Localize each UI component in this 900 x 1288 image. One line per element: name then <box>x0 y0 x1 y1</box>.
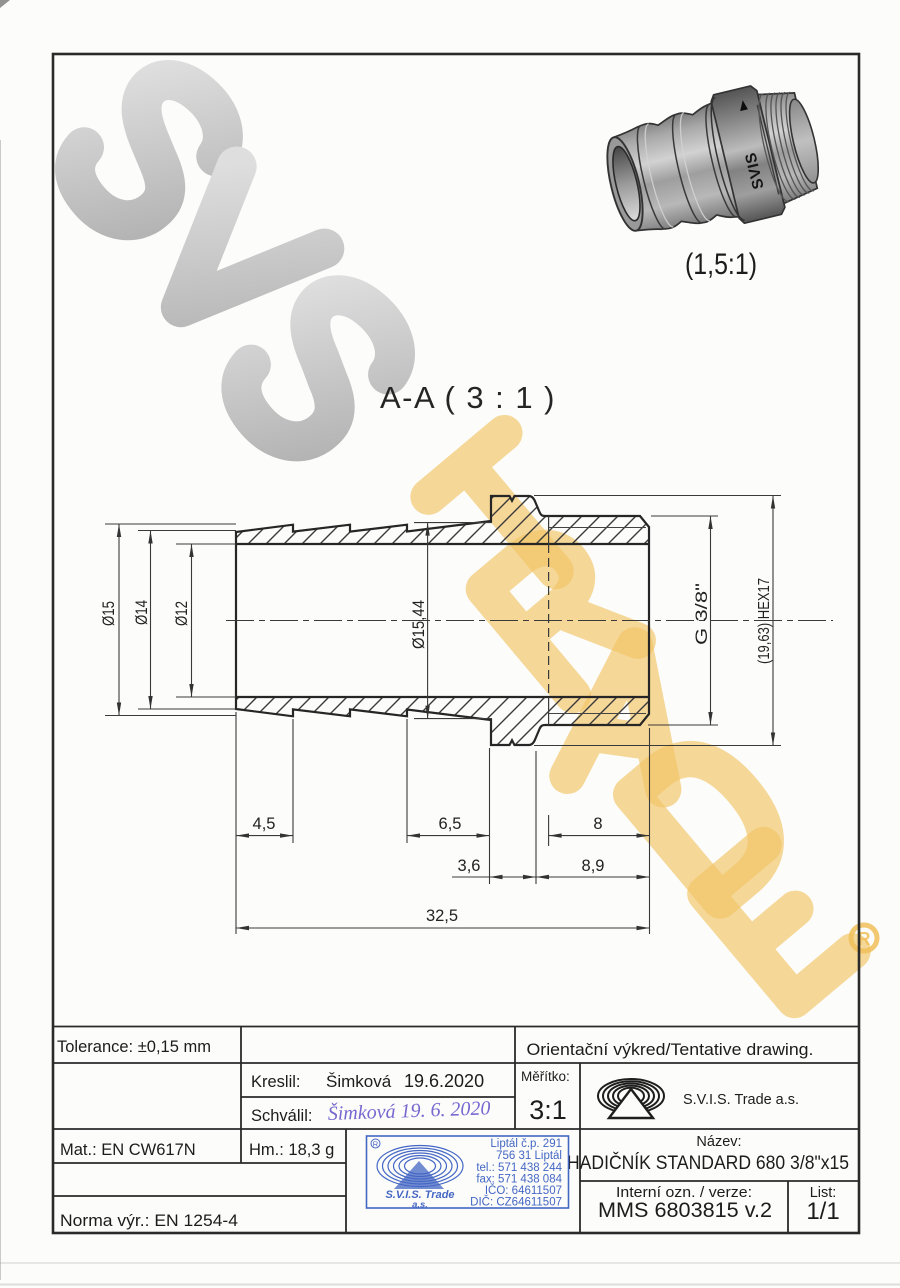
svg-text:Kreslil:: Kreslil: <box>251 1073 301 1091</box>
svg-text:DIČ: CZ64611507: DIČ: CZ64611507 <box>470 1196 562 1209</box>
svg-text:a.s.: a.s. <box>412 1200 428 1211</box>
svg-text:(1,5:1): (1,5:1) <box>685 248 757 281</box>
svg-text:Schválil:: Schválil: <box>251 1107 312 1125</box>
svg-text:HADIČNÍK STANDARD 680 3/8"x15: HADIČNÍK STANDARD 680 3/8"x15 <box>567 1152 849 1174</box>
svg-text:3,6: 3,6 <box>458 857 481 875</box>
svg-text:Hm.: 18,3 g: Hm.: 18,3 g <box>249 1141 334 1159</box>
svg-text:Ø15,44: Ø15,44 <box>410 600 428 649</box>
svg-text:1/1: 1/1 <box>806 1198 839 1225</box>
svg-text:Tolerance: ±0,15 mm: Tolerance: ±0,15 mm <box>57 1038 211 1056</box>
svg-text:Mat.: EN CW617N: Mat.: EN CW617N <box>60 1141 196 1159</box>
svg-text:Šimková: Šimková <box>326 1072 392 1091</box>
svg-text:32,5: 32,5 <box>426 907 458 925</box>
svg-text:fax: 571 438 084: fax: 571 438 084 <box>476 1174 562 1186</box>
svg-text:19.6.2020: 19.6.2020 <box>404 1071 484 1091</box>
svg-text:Ø12: Ø12 <box>173 601 191 626</box>
svg-text:756 31 Liptál: 756 31 Liptál <box>496 1150 562 1162</box>
svg-text:8: 8 <box>593 815 602 833</box>
svg-text:IČO: 64611507: IČO: 64611507 <box>485 1184 562 1197</box>
svg-text:tel.: 571 438 244: tel.: 571 438 244 <box>476 1162 562 1174</box>
svg-text:Liptál č.p. 291: Liptál č.p. 291 <box>490 1138 562 1150</box>
svg-text:Norma výr.: EN 1254-4: Norma výr.: EN 1254-4 <box>60 1212 238 1230</box>
svg-text:A-A ( 3 : 1 ): A-A ( 3 : 1 ) <box>380 380 556 415</box>
svg-text:Měřítko:: Měřítko: <box>521 1069 570 1084</box>
svg-text:S.V.I.S. Trade a.s.: S.V.I.S. Trade a.s. <box>683 1091 799 1108</box>
svg-text:Ø15: Ø15 <box>100 601 118 626</box>
svg-text:R: R <box>373 1140 379 1149</box>
svg-text:6,5: 6,5 <box>439 815 462 833</box>
svg-text:4,5: 4,5 <box>253 815 276 833</box>
svg-text:3:1: 3:1 <box>529 1095 567 1125</box>
svg-text:Orientační výkred/Tentative dr: Orientační výkred/Tentative drawing. <box>527 1041 814 1059</box>
svg-text:Název:: Název: <box>696 1134 741 1150</box>
svg-text:MMS 6803815 v.2: MMS 6803815 v.2 <box>598 1198 772 1222</box>
svg-text:G 3/8": G 3/8" <box>693 583 711 645</box>
svg-text:Ø14: Ø14 <box>133 600 151 625</box>
svg-text:8,9: 8,9 <box>582 857 605 875</box>
svg-text:Šimková 19. 6. 2020: Šimková 19. 6. 2020 <box>327 1095 491 1125</box>
svg-text:(19,63) HEX17: (19,63) HEX17 <box>756 578 773 664</box>
